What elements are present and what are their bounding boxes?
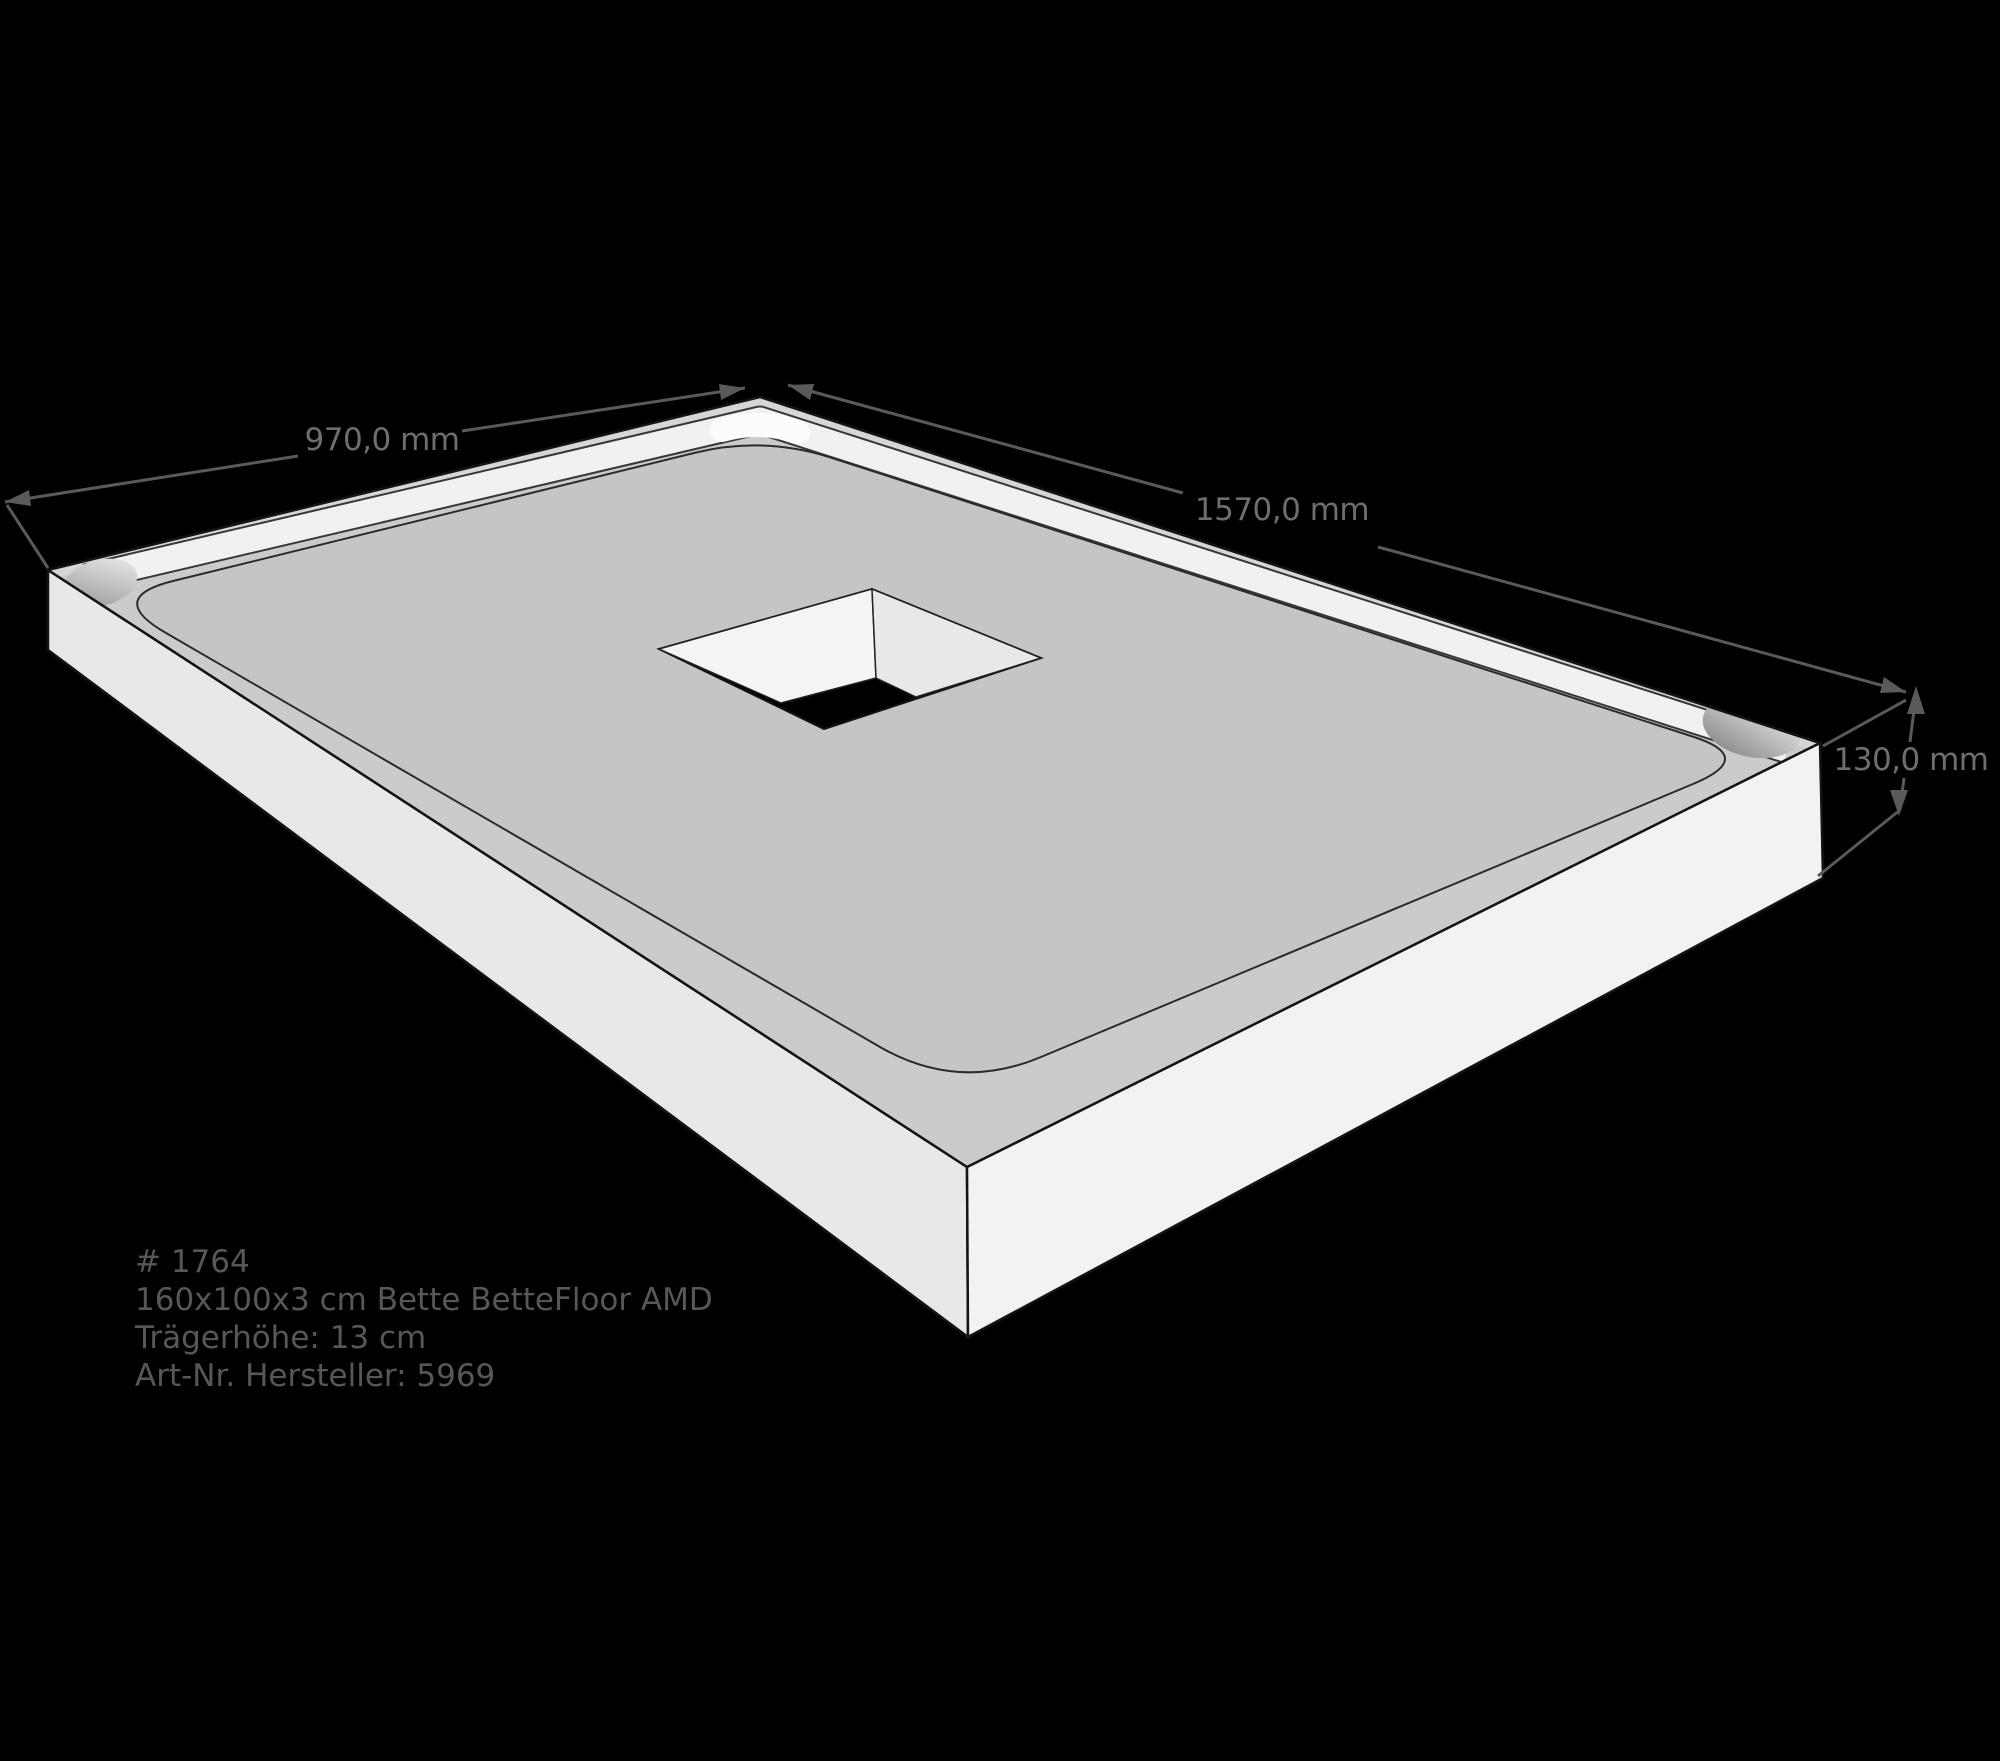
product-article-number: Art-Nr. Hersteller: 5969 <box>135 1358 495 1394</box>
width-dimension-label: 970,0 mm <box>305 422 460 458</box>
product-description: 160x100x3 cm Bette BetteFloor AMD <box>135 1282 713 1318</box>
rim-corner-highlight <box>722 425 798 432</box>
shower-tray-support-drawing: 970,0 mm 1570,0 mm 130,0 mm # 1764 160x1… <box>0 0 2000 1761</box>
product-id: # 1764 <box>135 1244 250 1280</box>
height-dimension-label: 130,0 mm <box>1834 742 1989 778</box>
product-carrier-height: Trägerhöhe: 13 cm <box>134 1320 426 1356</box>
technical-drawing-canvas: 970,0 mm 1570,0 mm 130,0 mm # 1764 160x1… <box>0 0 2000 1761</box>
length-dimension-label: 1570,0 mm <box>1195 492 1369 528</box>
